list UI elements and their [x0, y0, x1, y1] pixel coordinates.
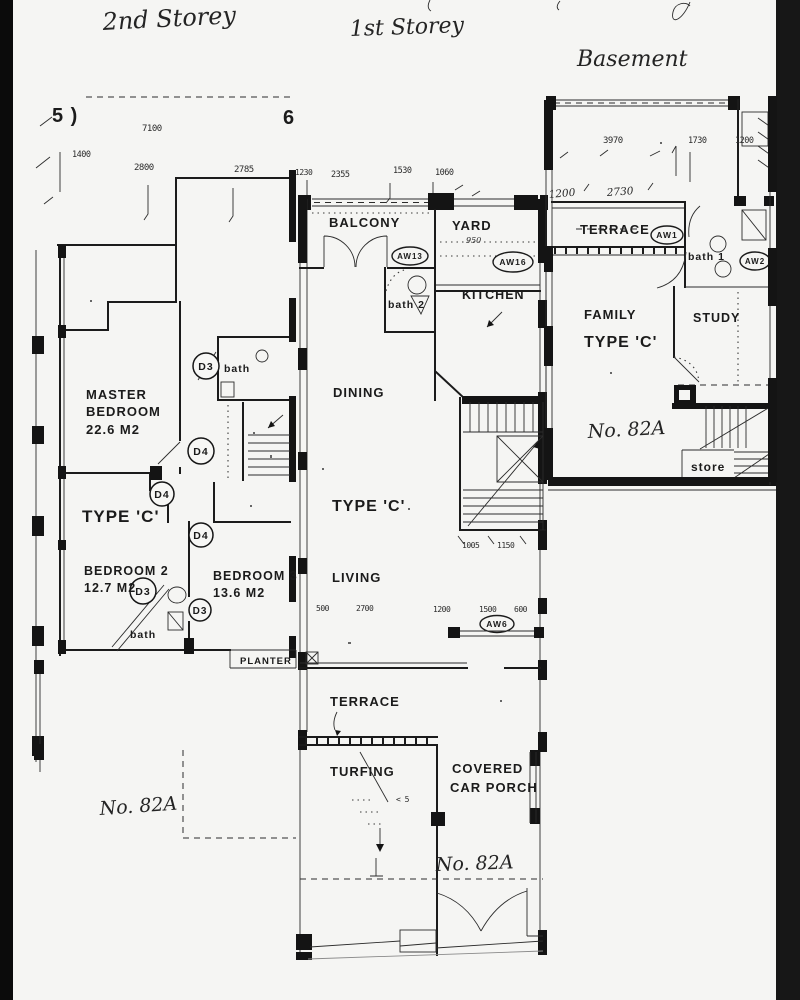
label-bedroom2: BEDROOM 2: [84, 564, 169, 578]
p2-bath-lower-label: bath: [130, 629, 156, 641]
p1-dim-1150: 1150: [497, 541, 515, 550]
label-bedroom3: BEDROOM 3: [213, 569, 298, 583]
label-store: store: [691, 460, 725, 474]
label-master-area: 22.6 M2: [86, 422, 140, 437]
window-tag-label: AW6: [486, 619, 507, 629]
door-tag-label: D4: [193, 530, 208, 542]
p1-house-number: No. 82A: [434, 851, 513, 876]
window-tag-aw1: AW1: [651, 226, 683, 244]
door-tag-d3-1: D3: [193, 353, 219, 379]
window-tag-label: AW13: [397, 252, 423, 261]
scan-edge-right: [776, 0, 800, 1000]
label-type-c-1st: TYPE 'C': [332, 498, 405, 515]
scan-edge-left: [0, 0, 13, 1000]
label-carporch-2: CAR PORCH: [450, 780, 538, 795]
p1-dim-1530: 1530: [393, 166, 412, 176]
p2-dim-1400: 1400: [72, 150, 91, 160]
p1-turfing-note: < 5: [396, 795, 410, 804]
door-tag-label: D4: [154, 489, 169, 501]
title-basement: Basement: [576, 47, 688, 72]
p1-dim-1500: 1500: [479, 605, 497, 614]
p2-dim-2785: 2785: [234, 165, 254, 175]
pb-dim-3970: 3970: [603, 136, 623, 146]
p1-dim-1230: 1230: [295, 168, 313, 177]
window-tag-aw2: AW2: [740, 252, 770, 270]
p1-dim-1200: 1200: [433, 605, 451, 614]
floorplan-drawing: 2nd Storey 1st Storey Basement 5 ) 6 710…: [0, 0, 800, 1000]
label-type-c: TYPE 'C': [82, 507, 160, 526]
label-terrace-1st: TERRACE: [330, 694, 400, 709]
label-planter: PLANTER: [240, 656, 292, 667]
label-master-1: MASTER: [86, 387, 147, 402]
p1-dim-2355: 2355: [331, 170, 350, 180]
door-tag-label: D4: [193, 446, 208, 458]
door-tag-label: D3: [198, 361, 213, 373]
window-tag-aw6: AW6: [480, 616, 514, 633]
label-turfing: TURFING: [330, 764, 395, 779]
label-kitchen: KITCHEN: [462, 288, 525, 302]
pb-hand-2730: 2730: [605, 185, 634, 199]
p2-ledge-block: [34, 744, 44, 760]
door-tag-d3-3: D3: [189, 599, 211, 621]
window-tag-aw16: AW16: [493, 252, 533, 272]
p1-dim-1005: 1005: [462, 541, 480, 550]
p1-dim-2700: 2700: [356, 604, 374, 613]
label-bath1: bath 1: [688, 251, 725, 263]
label-family: FAMILY: [584, 307, 636, 322]
label-balcony: BALCONY: [329, 215, 400, 230]
door-tag-d4-1: D4: [188, 438, 214, 464]
label-master-2: BEDROOM: [86, 404, 161, 419]
pb-dim-1730: 1730: [688, 136, 707, 146]
door-tag-d4-3: D4: [189, 523, 213, 547]
window-tag-label: AW16: [499, 257, 526, 267]
label-dining: DINING: [333, 385, 385, 400]
p2-ledge-block: [34, 660, 44, 674]
p1-dim-1060: 1060: [435, 168, 454, 178]
window-tag-aw13: AW13: [392, 247, 428, 265]
pb-house-number: No. 82A: [586, 417, 666, 443]
label-yard: YARD: [452, 218, 492, 233]
p2-grid-marker-5: 5 ): [52, 105, 78, 127]
p1-dim-500: 500: [316, 604, 330, 613]
door-tag-label: D3: [135, 586, 150, 598]
p2-dim-7100: 7100: [142, 124, 162, 134]
door-tag-label: D3: [193, 606, 208, 617]
window-tag-label: AW2: [745, 257, 765, 266]
label-living: LIVING: [332, 570, 381, 585]
label-carporch-1: COVERED: [452, 761, 523, 776]
title-1st-storey: 1st Storey: [349, 13, 465, 42]
pb-dim-1200: 1200: [735, 136, 754, 146]
window-tag-label: AW1: [656, 230, 677, 240]
label-bedroom3-area: 13.6 M2: [213, 586, 265, 600]
label-bedroom2-area: 12.7 M2: [84, 581, 136, 595]
p2-bath-upper-label: bath: [224, 363, 250, 375]
door-tag-d4-2: D4: [150, 482, 174, 506]
p1-yard-dim: 950: [466, 236, 481, 245]
floorplan-scan-page: 2nd Storey 1st Storey Basement 5 ) 6 710…: [0, 0, 800, 1000]
p1-dim-600: 600: [514, 605, 528, 614]
label-study: STUDY: [693, 311, 740, 325]
p2-grid-marker-6: 6: [283, 107, 295, 129]
label-type-c-basement: TYPE 'C': [584, 334, 657, 351]
label-bath2: bath 2: [388, 299, 425, 311]
p2-dim-2800: 2800: [134, 163, 154, 173]
